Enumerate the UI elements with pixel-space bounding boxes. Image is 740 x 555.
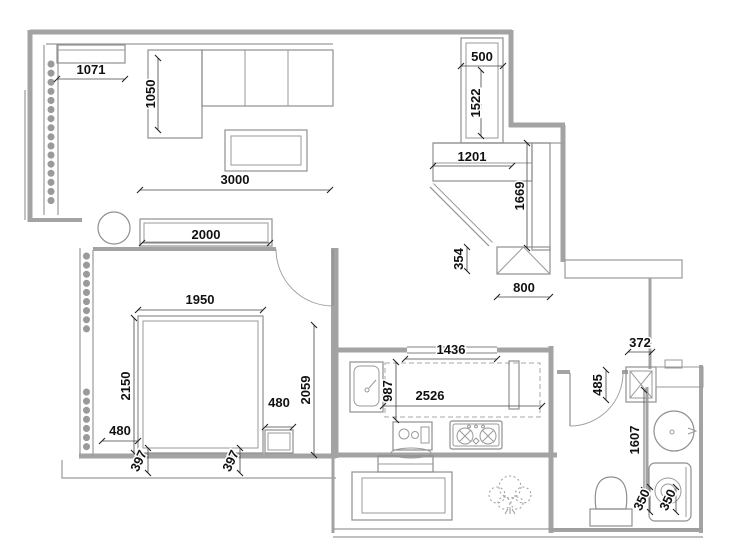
tall-cabinet [509, 361, 519, 409]
window-west-living [44, 45, 58, 215]
ac-unit [378, 456, 433, 472]
plant [489, 476, 531, 514]
dim-tv-cabinet: 2000 [192, 227, 221, 242]
dim-shoe-cabinet: 800 [513, 280, 535, 295]
dim-bed-side-gap: 480 [109, 423, 131, 438]
kitchen-sink [350, 362, 383, 412]
dim-bed-width: 1950 [186, 292, 215, 307]
dim-kitchen-opening: 1436 [437, 342, 466, 357]
dim-bedroom-east: 2059 [298, 376, 313, 405]
coffee-table [225, 130, 307, 171]
hall-cabinet [57, 45, 125, 63]
wash-basin [654, 411, 696, 451]
floor-plan-drawing: 1071 3000 2000 500 1201 800 1950 480 480… [0, 0, 740, 555]
side-table [98, 212, 130, 244]
nightstand [265, 430, 293, 453]
dim-sofa-depth: 1050 [143, 80, 158, 109]
dim-sink-depth: 987 [380, 380, 395, 402]
shoe-cabinet [497, 247, 550, 274]
dim-living-width: 3000 [221, 172, 250, 187]
window-west-bedroom [80, 248, 93, 456]
balcony-storage [352, 472, 452, 520]
dim-entry-cabinet-length: 1669 [512, 182, 527, 211]
dim-bed-foot-gap-left: 397 [127, 448, 150, 474]
dim-entry-gap: 354 [451, 247, 466, 269]
dimensions: 1071 3000 2000 500 1201 800 1950 480 480… [57, 49, 679, 513]
dim-hall-cabinet: 1071 [77, 62, 106, 77]
angled-partition [430, 184, 493, 247]
dim-bath-length: 1607 [627, 426, 642, 455]
dim-duct-height: 1522 [468, 89, 483, 118]
bed [138, 316, 263, 453]
dim-duct-width: 500 [471, 49, 493, 64]
bedroom-door [276, 249, 333, 306]
bath-duct-shaft [626, 367, 656, 402]
gas-stove [450, 421, 502, 449]
dim-bed-foot-gap-right: 397 [219, 448, 242, 474]
dim-counter-length: 2526 [416, 388, 445, 403]
floor-plan: 1071 3000 2000 500 1201 800 1950 480 480… [0, 0, 740, 555]
bath-shelf [656, 360, 703, 387]
dim-nightstand: 480 [268, 395, 290, 410]
dim-entry-cabinet-width: 1201 [458, 149, 487, 164]
wall-protrusion [565, 260, 682, 278]
entry-side-cabinet [532, 143, 550, 250]
sofa [148, 50, 333, 138]
dim-bath-duct: 372 [629, 335, 651, 350]
dim-bed-length: 2150 [118, 372, 133, 401]
dim-washer-offset: 350 [656, 487, 679, 513]
toilet [590, 477, 632, 526]
dim-bath-entry: 485 [590, 374, 605, 396]
